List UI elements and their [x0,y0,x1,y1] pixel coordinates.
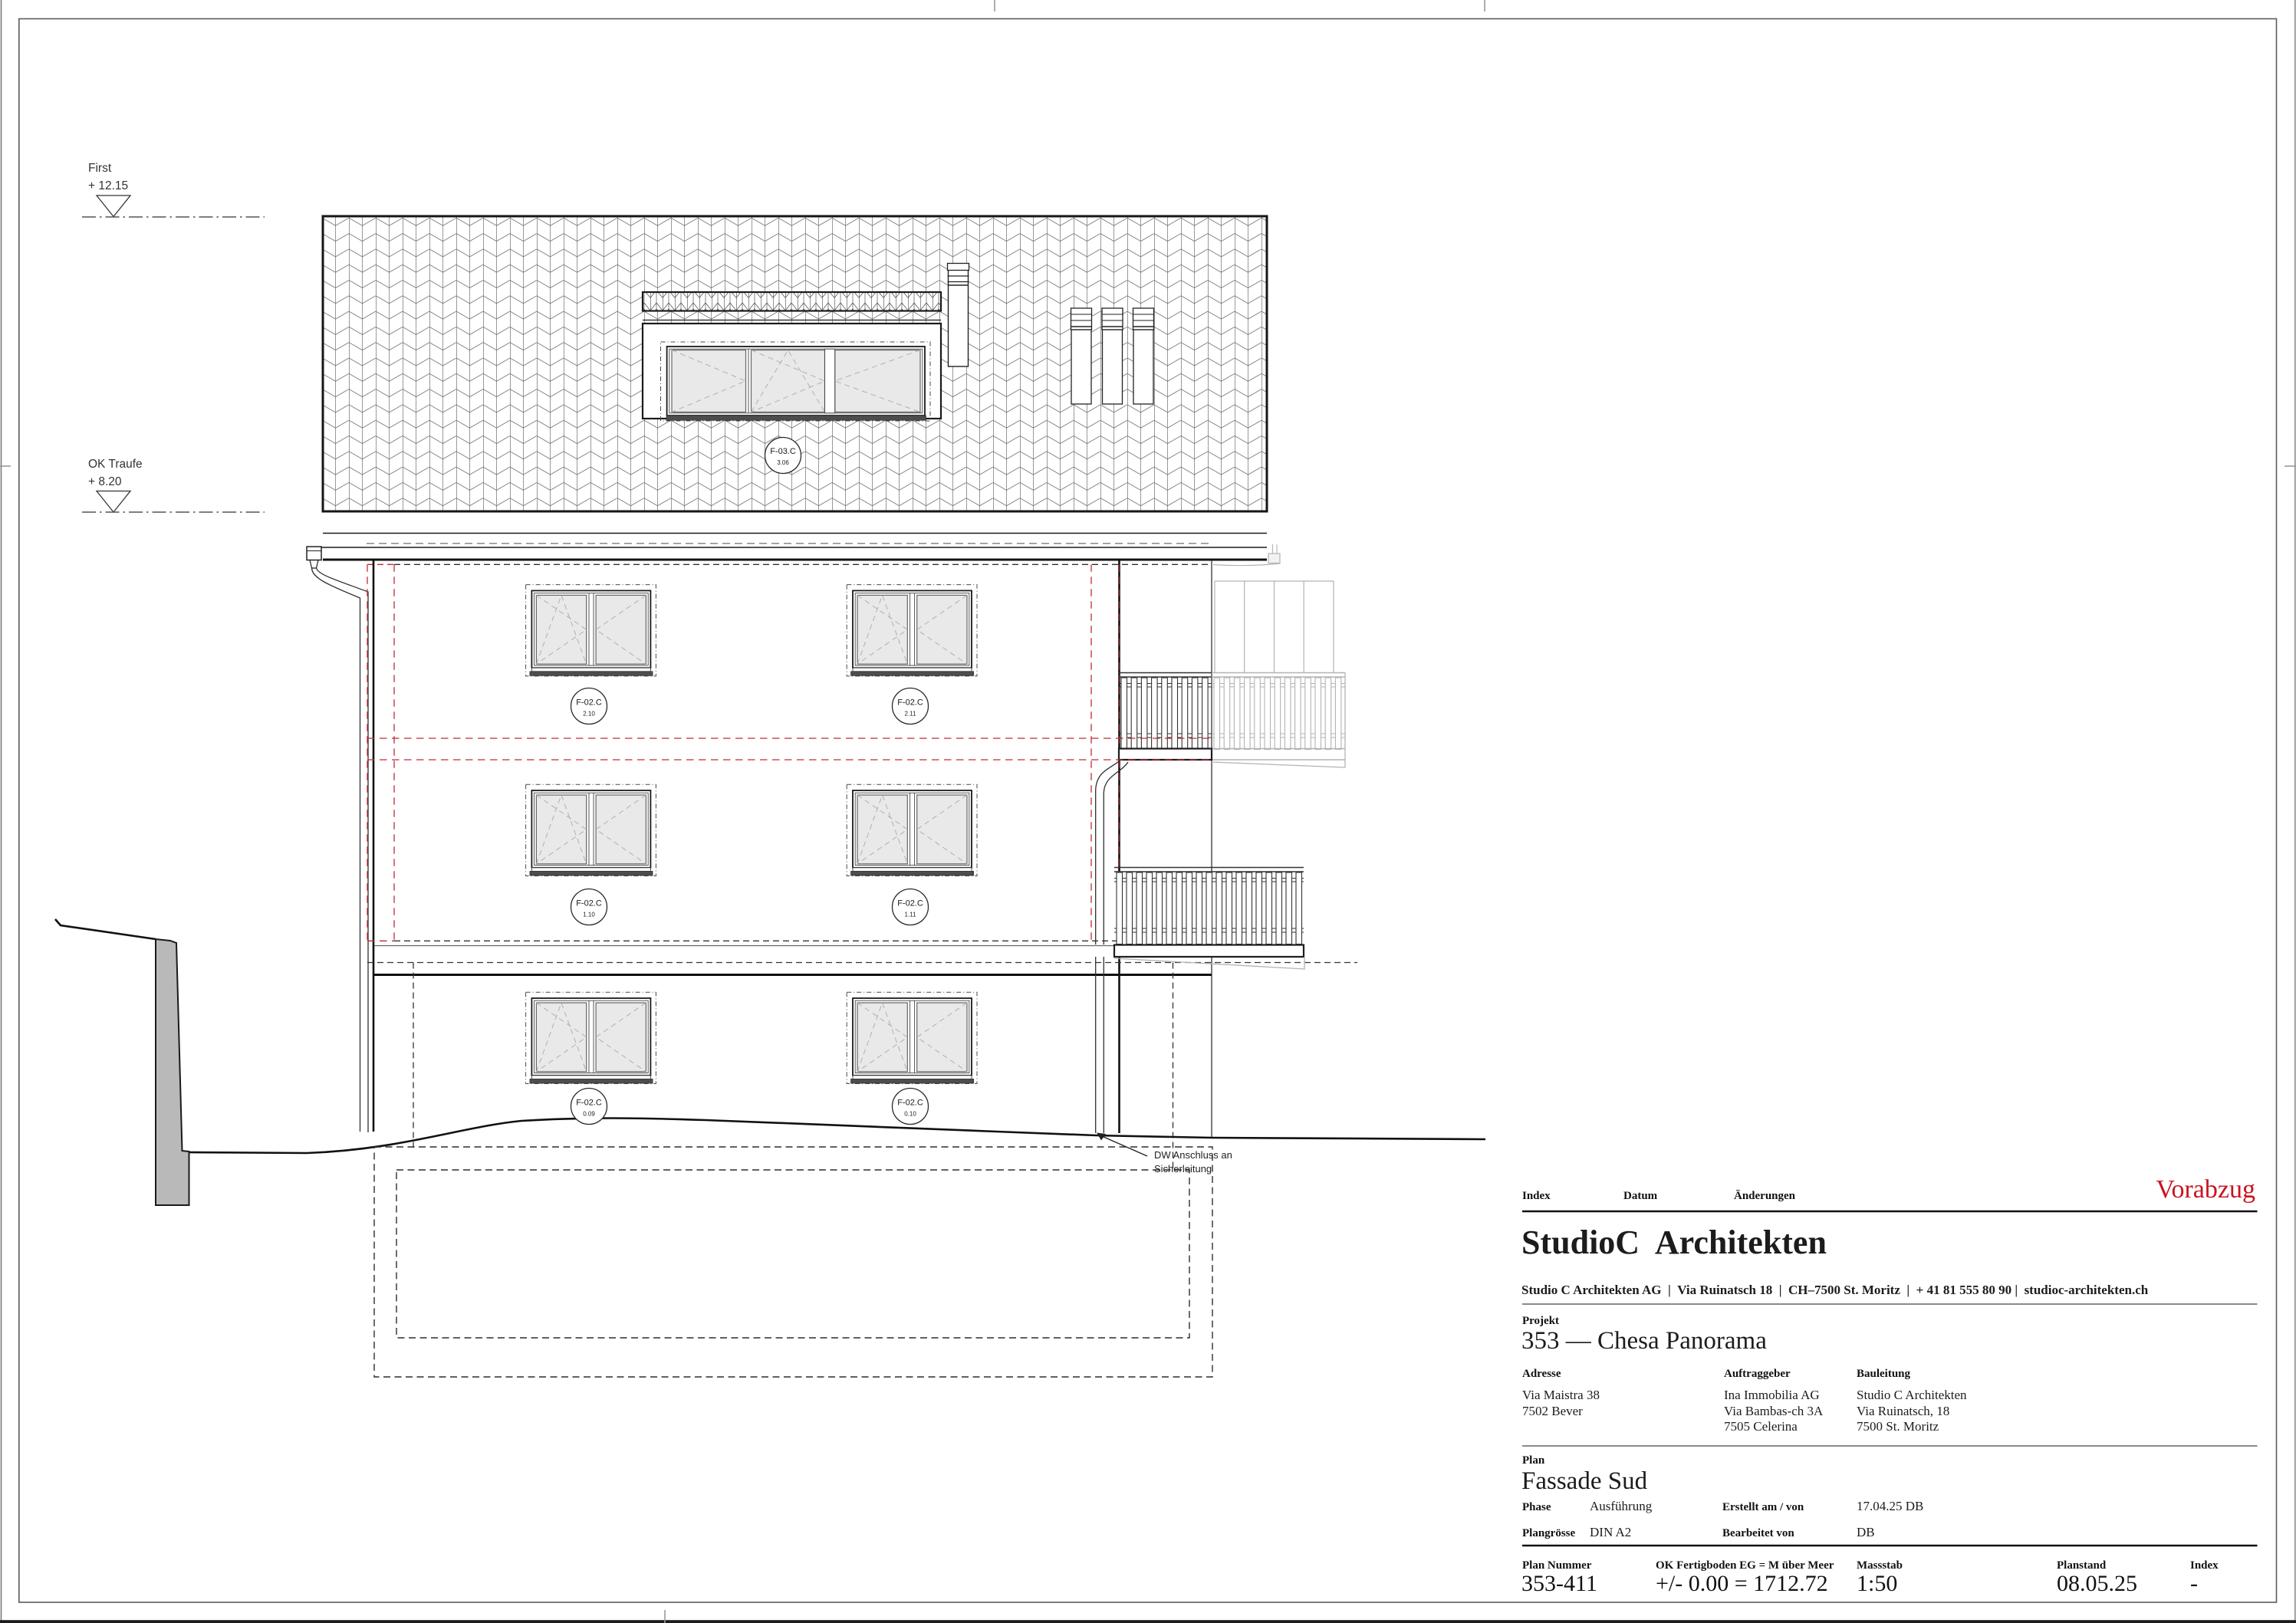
svg-text:DW Anschluss an: DW Anschluss an [1154,1149,1232,1161]
svg-text:353 — Chesa Panorama: 353 — Chesa Panorama [1521,1327,1767,1355]
svg-text:F-02.C: F-02.C [576,899,602,908]
svg-text:08.05.25: 08.05.25 [2057,1571,2137,1596]
svg-text:Erstellt am / von: Erstellt am / von [1722,1501,1804,1513]
svg-text:Plan: Plan [1522,1454,1545,1467]
svg-text:F-02.C: F-02.C [576,1099,602,1108]
svg-text:Index: Index [2190,1559,2219,1572]
svg-text:F-02.C: F-02.C [897,698,923,708]
svg-text:Datum: Datum [1623,1190,1658,1202]
svg-text:F-02.C: F-02.C [897,899,923,908]
svg-text:Ausführung: Ausführung [1590,1499,1653,1513]
svg-text:Phase: Phase [1522,1501,1551,1513]
svg-text:Index: Index [1522,1190,1551,1202]
svg-text:Studio C Architekten AG | Vi: Studio C Architekten AG | Via Ruinatsch … [1521,1283,2149,1297]
svg-text:0.10: 0.10 [904,1111,916,1118]
svg-text:Massstab: Massstab [1857,1559,1903,1572]
svg-text:353-411: 353-411 [1521,1571,1597,1596]
svg-text:1:50: 1:50 [1857,1571,1897,1596]
svg-text:0.09: 0.09 [583,1111,595,1118]
svg-text:Bauleitung: Bauleitung [1857,1368,1911,1380]
svg-text:2.11: 2.11 [905,711,917,718]
svg-text:1.10: 1.10 [583,912,595,918]
svg-text:3.06: 3.06 [777,459,789,466]
svg-text:Via Ruinatsch, 18: Via Ruinatsch, 18 [1857,1404,1949,1418]
svg-text:DB: DB [1857,1525,1875,1539]
svg-text:7505 Celerina: 7505 Celerina [1724,1419,1798,1434]
svg-text:Projekt: Projekt [1522,1315,1559,1327]
svg-text:Vorabzug: Vorabzug [2156,1175,2255,1204]
svg-text:Adresse: Adresse [1522,1368,1561,1380]
svg-text:Bearbeitet von: Bearbeitet von [1722,1527,1794,1539]
svg-text:Via Bambas-ch 3A: Via Bambas-ch 3A [1724,1404,1824,1418]
svg-text:First: First [88,162,112,175]
svg-text:+/- 0.00 = 1712.72: +/- 0.00 = 1712.72 [1656,1571,1828,1596]
svg-text:Auftraggeber: Auftraggeber [1724,1368,1791,1380]
svg-text:Sicherleitung: Sicherleitung [1154,1163,1212,1175]
svg-text:+ 8.20: + 8.20 [88,475,122,488]
svg-text:Planstand: Planstand [2057,1559,2107,1572]
svg-text:Plan Nummer: Plan Nummer [1522,1559,1592,1572]
svg-text:1.11: 1.11 [905,912,917,918]
svg-text:+ 12.15: + 12.15 [88,179,128,192]
svg-text:Ina Immobilia AG: Ina Immobilia AG [1724,1388,1820,1402]
svg-text:17.04.25 DB: 17.04.25 DB [1857,1499,1923,1513]
svg-text:Via Maistra 38: Via Maistra 38 [1522,1388,1600,1402]
svg-text:OK Traufe: OK Traufe [88,458,143,471]
svg-text:-: - [2190,1571,2198,1596]
svg-text:StudioC Architekten: StudioC Architekten [1521,1224,1827,1261]
svg-text:Studio C Architekten: Studio C Architekten [1857,1388,1967,1402]
svg-text:DIN A2: DIN A2 [1590,1525,1631,1539]
svg-text:F-03.C: F-03.C [770,447,796,456]
svg-text:OK Fertigboden EG = M über Mee: OK Fertigboden EG = M über Meer [1656,1559,1834,1572]
svg-text:2.10: 2.10 [583,711,595,718]
svg-text:F-02.C: F-02.C [576,698,602,708]
svg-text:7500 St. Moritz: 7500 St. Moritz [1857,1419,1939,1434]
svg-text:Änderungen: Änderungen [1734,1190,1796,1202]
svg-text:Fassade Sud: Fassade Sud [1521,1467,1648,1495]
svg-text:7502 Bever: 7502 Bever [1522,1404,1583,1418]
svg-text:F-02.C: F-02.C [897,1099,923,1108]
svg-text:Plangrösse: Plangrösse [1522,1527,1576,1539]
